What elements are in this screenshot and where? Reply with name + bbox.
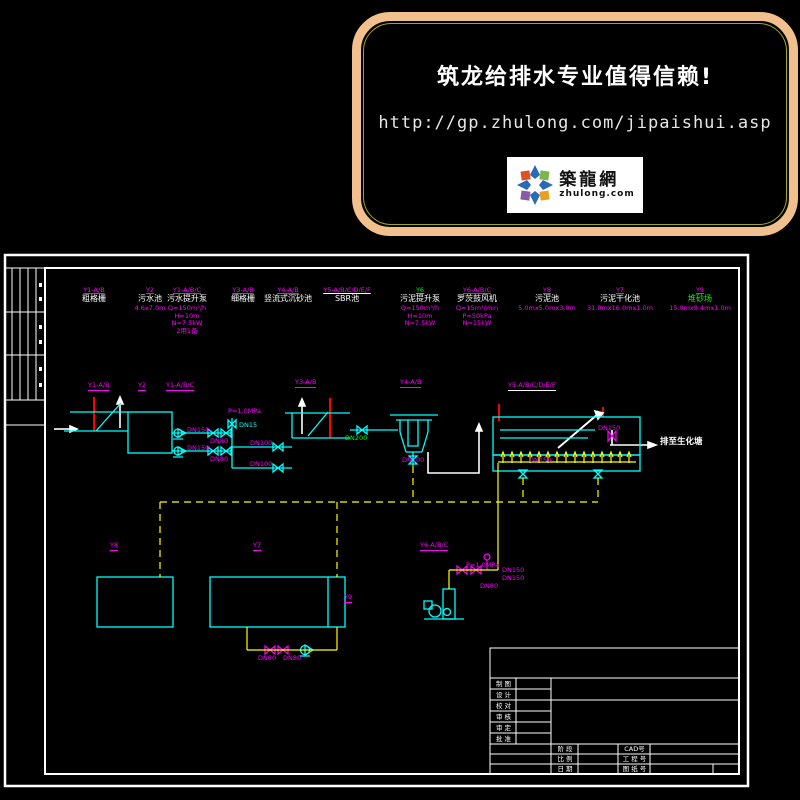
equipment-sludge-tank: Y8污泥池5.0mx5.0mx3.0m — [518, 286, 576, 313]
screen-valve-dn-label: DN200 — [345, 435, 367, 442]
tag-lift-pumps: Y1-A/B/C — [166, 382, 194, 391]
equipment-blowers: Y6-A/B/C罗茨鼓风机Q=15m³/min P=50kPa N=15kW — [456, 286, 498, 328]
equipment-fine-screen: Y3-A/B细格栅 — [231, 286, 255, 305]
grit-drain-dn-label: DN100 — [402, 457, 424, 464]
sludge-drain-lines — [160, 466, 598, 577]
tag-drying-bed: Y7 — [253, 542, 261, 551]
roots-blower-unit — [424, 589, 464, 619]
branch1-dn-label: DN100 — [250, 440, 272, 447]
tag-sludge-tank: Y8 — [110, 542, 118, 551]
signature-column-grid — [4, 268, 45, 425]
fine-screen-channel — [285, 412, 350, 438]
equipment-sump: Y2污水池4.6x7.0m — [135, 286, 166, 313]
sludge-dn80a-label: DN80 — [258, 655, 276, 662]
valve2-dn-label: DN80 — [210, 456, 228, 463]
sludge-tank-box — [97, 577, 173, 627]
titleblock-reviewer: 审 核 — [491, 712, 516, 722]
pressure-label: P=1.0MPa — [228, 408, 261, 415]
signature-column-marks — [39, 283, 42, 387]
equipment-coarse-screen: Y1-A/B粗格栅 — [82, 286, 106, 305]
titleblock-authorizer: 批 准 — [491, 734, 516, 744]
titleblock-scale: 比 例 — [552, 754, 578, 764]
sludge-dn80b-label: DN80 — [283, 655, 301, 662]
titleblock-drawing-no: 图 纸 号 — [619, 764, 650, 774]
sbr-inflow-pipe — [428, 430, 479, 473]
titleblock-drafter: 制 图 — [491, 679, 516, 689]
equipment-lift-pumps: Y1-A/B/C污水提升泵Q=150m³/h H=10m N=7.5kW 2用1… — [167, 286, 207, 335]
outfall-label: 排至生化塘 — [660, 439, 703, 446]
branch2-dn-label: DN100 — [250, 461, 272, 468]
drawing-frame — [4, 255, 748, 786]
decanter-arm — [558, 414, 598, 448]
equipment-sand-yard: Y9堆砂场15.0mx9.4mx1.0m — [669, 286, 731, 313]
titleblock-stage: 阶 段 — [552, 744, 578, 754]
pressure-gauge-icon — [484, 554, 490, 560]
tag-sump: Y2 — [138, 382, 146, 391]
equipment-grit-chamber: Y4-A/B竖流式沉砂池 — [264, 286, 312, 305]
sump-tank — [128, 412, 172, 453]
equipment-sludge-pump: Y6污泥提升泵Q=150m³/h H=10m N=7.5kW — [400, 286, 440, 328]
titleblock-designer: 设 计 — [491, 690, 516, 700]
pump1-dn-label: DN150 — [187, 427, 209, 434]
titleblock-checker: 校 对 — [491, 701, 516, 711]
sbr-drain-dn-label: DN150 — [529, 457, 551, 464]
titleblock-project-no: 工 程 号 — [619, 754, 650, 764]
aeration-diffusers — [501, 452, 631, 463]
process-flow-diagram — [0, 0, 800, 800]
blower-dn150b-label: DN150 — [502, 575, 524, 582]
sludge-pump-loop — [247, 627, 337, 650]
pump2-dn-label: DN150 — [187, 445, 209, 452]
blower-pressure-label: P=1.0MPa — [466, 562, 499, 569]
equipment-drying-bed: Y7污泥干化池31.0mx16.0mx1.0m — [587, 286, 653, 313]
titleblock-date: 日 期 — [552, 764, 578, 774]
titleblock-approver: 审 定 — [491, 723, 516, 733]
valve1-dn-label: DN80 — [210, 438, 228, 445]
tag-blowers: Y6-A/B/C — [420, 542, 448, 551]
outfall-arrowhead — [648, 442, 656, 448]
air-piping — [247, 452, 636, 650]
tag-fine-screen: Y3-A/B — [295, 379, 316, 388]
title-block-grid — [490, 648, 739, 774]
blower-dn80-label: DN80 — [480, 583, 498, 590]
sludge-drying-bed-box — [210, 577, 345, 627]
tag-sand-yard: Y9 — [344, 594, 352, 603]
blower-dn150a-label: DN150 — [502, 567, 524, 574]
titleblock-cad-no: CAD号 — [619, 744, 650, 754]
tag-sbr: Y5-A/B/C/D/E/F — [508, 382, 556, 391]
tag-grit-chamber: Y4-A/B — [400, 379, 421, 388]
dn15-label: DN15 — [239, 422, 257, 429]
decant-dn-label: DN150 — [598, 425, 620, 432]
tag-coarse-screen: Y1-A/B — [88, 382, 109, 391]
equipment-sbr: Y5-A/B/C/D/E/FSBR池 — [323, 286, 371, 305]
